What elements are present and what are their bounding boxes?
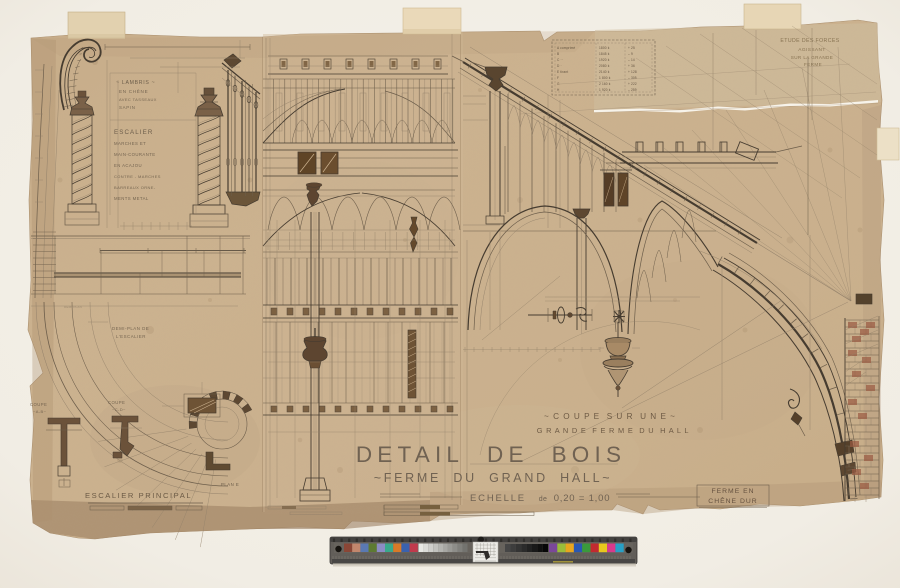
svg-text:1800 k: 1800 k	[599, 46, 610, 50]
svg-text:~FERME DU GRAND HALL~: ~FERME DU GRAND HALL~	[374, 471, 612, 485]
svg-text:1 800 k: 1 800 k	[599, 76, 611, 80]
svg-text:A comprimé: A comprimé	[557, 46, 575, 50]
svg-text:de: de	[539, 496, 547, 503]
svg-text:– 14: – 14	[628, 58, 635, 62]
svg-text:PLAN E: PLAN E	[221, 482, 239, 487]
svg-text:COUPE: COUPE	[108, 400, 125, 405]
svg-text:MARCHES ET: MARCHES ET	[114, 141, 146, 146]
svg-text:CHÊNE DUR: CHÊNE DUR	[708, 496, 757, 505]
svg-text:AVEC TASSEAUX: AVEC TASSEAUX	[119, 97, 157, 102]
svg-text:SAPIN: SAPIN	[119, 105, 136, 110]
svg-text:+ 128: + 128	[628, 70, 637, 74]
svg-text:B: B	[557, 52, 559, 56]
svg-text:CONTRE - MARCHES: CONTRE - MARCHES	[114, 174, 161, 179]
svg-text:1845 k: 1845 k	[599, 52, 610, 56]
svg-text:COUPE: COUPE	[30, 402, 47, 407]
svg-text:MENTS METAL: MENTS METAL	[114, 196, 149, 201]
svg-text:G R A N D E F E R M E D U H: G R A N D E F E R M E D U H A L L	[537, 426, 690, 435]
svg-text:+ 25: + 25	[628, 46, 635, 50]
svg-text:– 9: – 9	[628, 52, 633, 56]
svg-text:G: G	[557, 82, 560, 86]
svg-text:C ··: C ··	[557, 58, 563, 62]
svg-text:MAIN-COURANTE: MAIN-COURANTE	[114, 152, 155, 157]
svg-text:EN CHÊNE: EN CHÊNE	[119, 87, 148, 94]
svg-text:DETAIL DE BOIS: DETAIL DE BOIS	[356, 442, 626, 467]
svg-text:+ 36: + 36	[628, 64, 635, 68]
svg-text:~ C O U P E S U R U N E ~: ~ C O U P E S U R U N E ~	[544, 412, 676, 421]
svg-text:2080 k: 2080 k	[599, 64, 610, 68]
svg-text:0,20 = 1,00: 0,20 = 1,00	[554, 493, 611, 504]
svg-text:1 920 k: 1 920 k	[599, 88, 611, 92]
svg-text:2 160 k: 2 160 k	[599, 82, 611, 86]
svg-text:BARREAUX ORNE-: BARREAUX ORNE-	[114, 185, 156, 190]
svg-text:~ LAMBRIS ~: ~ LAMBRIS ~	[116, 80, 155, 86]
svg-text:L’ESCALIER: L’ESCALIER	[116, 334, 146, 339]
svg-text:F: F	[557, 76, 559, 80]
svg-text:– 259: – 259	[628, 88, 637, 92]
svg-text:ETUDE DES FORCES: ETUDE DES FORCES	[780, 38, 839, 44]
svg-text:ESCALIER: ESCALIER	[114, 129, 153, 136]
svg-text:~C-D~: ~C-D~	[112, 407, 126, 412]
svg-text:FERME EN: FERME EN	[711, 488, 754, 495]
svg-text:+ 222: + 222	[628, 82, 637, 86]
svg-text:ECHELLE: ECHELLE	[470, 493, 526, 504]
svg-text:D ·: D ·	[557, 64, 562, 68]
svg-text:DEMI-PLAN DE: DEMI-PLAN DE	[112, 326, 149, 331]
svg-text:ESCALIER PRINCIPAL: ESCALIER PRINCIPAL	[85, 491, 192, 500]
svg-text:DEMI PLAN: DEMI PLAN	[64, 305, 82, 309]
svg-text:~A-B~: ~A-B~	[33, 409, 47, 414]
svg-text:1920 k: 1920 k	[599, 58, 610, 62]
svg-text:2140 k: 2140 k	[599, 70, 610, 74]
svg-text:E tirant: E tirant	[557, 70, 568, 74]
svg-text:EN ACAJOU: EN ACAJOU	[114, 163, 142, 168]
